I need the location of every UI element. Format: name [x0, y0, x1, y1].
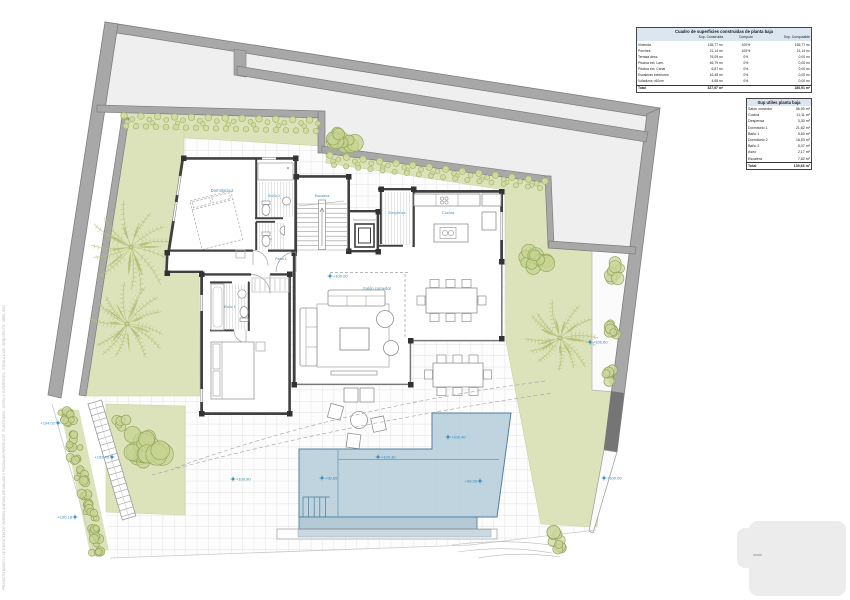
svg-text:+100.00: +100.00	[333, 273, 348, 278]
svg-text:Cocina: Cocina	[442, 210, 455, 215]
svg-text:+100.90: +100.90	[236, 476, 251, 481]
svg-text:+104.02: +104.02	[40, 420, 55, 425]
svg-text:+100.30: +100.30	[381, 454, 396, 459]
svg-text:+100.40: +100.40	[451, 434, 466, 439]
svg-text:+99.65: +99.65	[325, 475, 338, 480]
svg-text:+100.18: +100.18	[57, 514, 72, 519]
svg-text:Dormitorio 2: Dormitorio 2	[211, 188, 234, 193]
svg-text:+99.30: +99.30	[465, 478, 478, 483]
svg-text:Escalera: Escalera	[315, 194, 331, 198]
svg-text:+100.00: +100.00	[607, 475, 622, 480]
svg-text:+100.60: +100.60	[593, 339, 608, 344]
svg-text:+102.45: +102.45	[94, 454, 109, 459]
